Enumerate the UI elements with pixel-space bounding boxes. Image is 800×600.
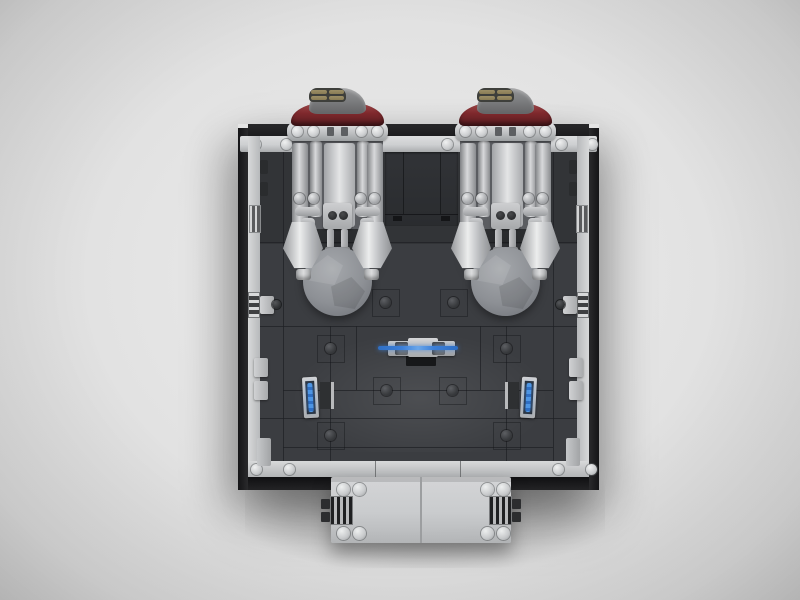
floor-seam: [356, 326, 357, 390]
floor-stud: [501, 343, 512, 354]
floor-stud: [501, 430, 512, 441]
module-stud: [497, 527, 510, 540]
boulder-facet: [499, 277, 533, 309]
floor-seam: [283, 152, 284, 461]
wall-bracket: [563, 296, 577, 314]
module-stud: [337, 527, 350, 540]
floor-stud: [381, 385, 392, 396]
cone-tip: [296, 269, 311, 280]
dome-window-pane: [311, 96, 327, 100]
ring-slot: [509, 127, 516, 136]
dome-window-pane: [329, 90, 345, 94]
bracket-leg: [327, 229, 334, 248]
wall-hinge: [569, 182, 577, 196]
beam-seam: [460, 461, 461, 477]
dome-windows: [477, 88, 514, 102]
engine-bracket: [323, 203, 352, 229]
wall-grille-left: [248, 292, 260, 318]
cone-tip: [364, 269, 379, 280]
panel-edge: [331, 382, 334, 409]
engine-right: [458, 88, 553, 320]
module-stud: [353, 483, 366, 496]
panel-edge: [505, 382, 508, 409]
beam-stud: [586, 464, 597, 475]
bracket-hole: [328, 211, 337, 220]
pipe-elbow: [523, 207, 548, 216]
corner-piece: [566, 438, 580, 466]
floor-stud: [325, 343, 336, 354]
floor-seam: [260, 326, 577, 327]
corner-piece: [257, 438, 271, 466]
beam-stud: [556, 139, 567, 150]
dome-windows: [309, 88, 346, 102]
dome-window-pane: [479, 96, 495, 100]
ring-slot: [327, 127, 334, 136]
engine-left: [290, 88, 385, 320]
wall-hinge: [260, 182, 268, 196]
wall-grille-right: [577, 292, 589, 318]
wall-bracket: [569, 381, 583, 400]
module-stud: [481, 483, 494, 496]
wall-bracket: [569, 358, 583, 377]
module-seam: [420, 477, 422, 543]
console-left: [302, 377, 319, 419]
beam-stud: [553, 464, 564, 475]
beam-stud: [442, 139, 453, 150]
pipe-valve: [476, 193, 487, 204]
pipe-valve: [308, 193, 319, 204]
floor-stud: [325, 430, 336, 441]
door-seam: [440, 152, 441, 214]
air-vent-left: [330, 496, 353, 525]
bracket-hole: [339, 211, 348, 220]
pipe-valve: [355, 193, 366, 204]
ring-stud: [460, 126, 471, 137]
air-vent-right: [489, 496, 512, 525]
cone-tip: [532, 269, 547, 280]
weapon-rack: [378, 336, 458, 368]
dome-cap: [309, 88, 366, 114]
dome-window-pane: [497, 96, 513, 100]
wall-grille-upper-left: [249, 205, 261, 233]
cone-tip: [464, 269, 479, 280]
beam-seam: [375, 461, 376, 477]
ring-stud: [292, 126, 303, 137]
outer-wall-right: [589, 128, 599, 490]
dome-window-pane: [497, 90, 513, 94]
wall-hinge: [569, 160, 577, 174]
bracket-leg: [341, 229, 348, 248]
console-side-panel: [320, 382, 334, 409]
module-stud: [353, 527, 366, 540]
ring-stud: [476, 126, 487, 137]
outer-wall-left: [238, 128, 248, 490]
bracket-hole: [507, 211, 516, 220]
pipe-valve: [537, 193, 548, 204]
door-seam: [385, 214, 458, 215]
wall-stud: [272, 300, 281, 309]
pipe-elbow: [355, 207, 380, 216]
ring-slot: [341, 127, 348, 136]
pipe-valve: [523, 193, 534, 204]
pipe-valve: [369, 193, 380, 204]
floor-stud: [447, 385, 458, 396]
pipe-valve: [462, 193, 473, 204]
ring-slot: [495, 127, 502, 136]
module-stud: [497, 483, 510, 496]
dome-cap: [477, 88, 534, 114]
rear-door-panel: [385, 152, 458, 226]
module-stud: [481, 527, 494, 540]
floor-seam: [480, 326, 481, 390]
vent-tab: [321, 499, 330, 509]
wall-grille-upper-right: [576, 205, 588, 233]
module-stud: [337, 483, 350, 496]
console-side-panel: [505, 382, 519, 409]
render-stage: [0, 0, 800, 600]
bottom-beam: [248, 461, 589, 477]
blue-staff: [378, 346, 458, 350]
ring-stud: [540, 126, 551, 137]
door-notch: [393, 216, 402, 221]
dome-window-pane: [311, 90, 327, 94]
ring-stud: [356, 126, 367, 137]
floor-seam: [553, 152, 554, 461]
bracket-leg: [509, 229, 516, 248]
wall-bracket: [254, 381, 268, 400]
console-right: [520, 377, 537, 419]
ring-stud: [524, 126, 535, 137]
airlock-module: [331, 477, 511, 543]
engine-bracket: [491, 203, 520, 229]
vent-tab: [321, 512, 330, 522]
beam-stud: [284, 464, 295, 475]
pipe-elbow: [295, 207, 320, 216]
dome-window-pane: [329, 96, 345, 100]
vent-tab: [512, 512, 521, 522]
boulder-facet: [331, 277, 365, 309]
bracket-hole: [496, 211, 505, 220]
pipe-valve: [294, 193, 305, 204]
door-notch: [441, 216, 450, 221]
dome-window-pane: [479, 90, 495, 94]
ring-stud: [308, 126, 319, 137]
wall-hinge: [260, 160, 268, 174]
ring-stud: [372, 126, 383, 137]
door-seam: [403, 152, 404, 214]
bracket-leg: [495, 229, 502, 248]
pipe-elbow: [463, 207, 488, 216]
vent-tab: [512, 499, 521, 509]
wall-bracket: [254, 358, 268, 377]
